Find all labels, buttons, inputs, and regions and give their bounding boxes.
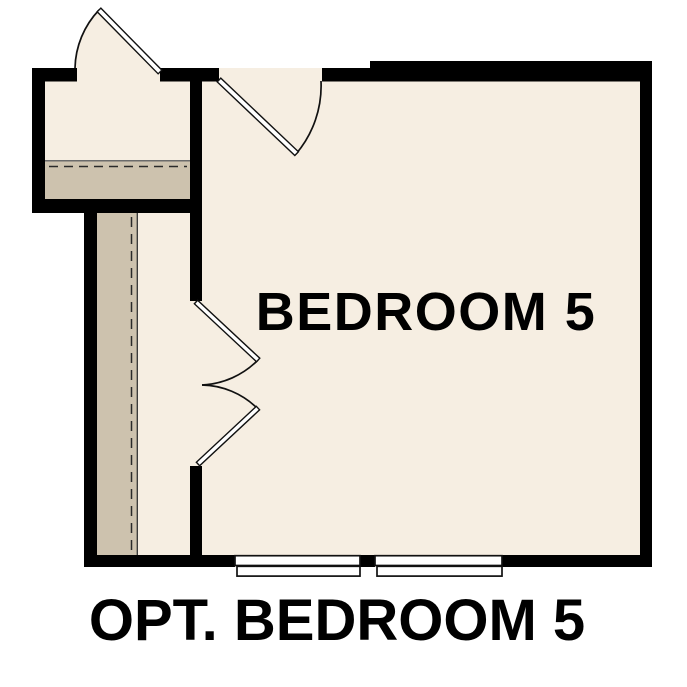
bottom-wall-segment: [84, 555, 235, 567]
left-wall-upper: [32, 68, 45, 213]
stair-strip-left-corridor: [97, 213, 137, 555]
window-bottom-left: [235, 556, 360, 576]
interior-wall-upper: [190, 81, 202, 301]
interior-wall-lower: [190, 466, 202, 555]
cross-wall: [32, 199, 202, 213]
right-wall: [640, 61, 652, 567]
caption-label: OPT. BEDROOM 5: [89, 592, 585, 650]
top-wall-segment: [160, 68, 219, 82]
left-wall-lower: [84, 213, 97, 567]
floorplan-drawing: [0, 0, 687, 687]
bottom-wall-segment: [502, 555, 652, 567]
floorplan: BEDROOM 5 OPT. BEDROOM 5: [0, 0, 687, 687]
room-label: BEDROOM 5: [256, 285, 597, 339]
window-pier: [360, 555, 375, 567]
stair-band-upper-left: [45, 160, 190, 199]
window-bottom-right: [375, 556, 502, 576]
top-wall-segment: [370, 61, 652, 82]
top-wall-segment: [322, 68, 370, 82]
